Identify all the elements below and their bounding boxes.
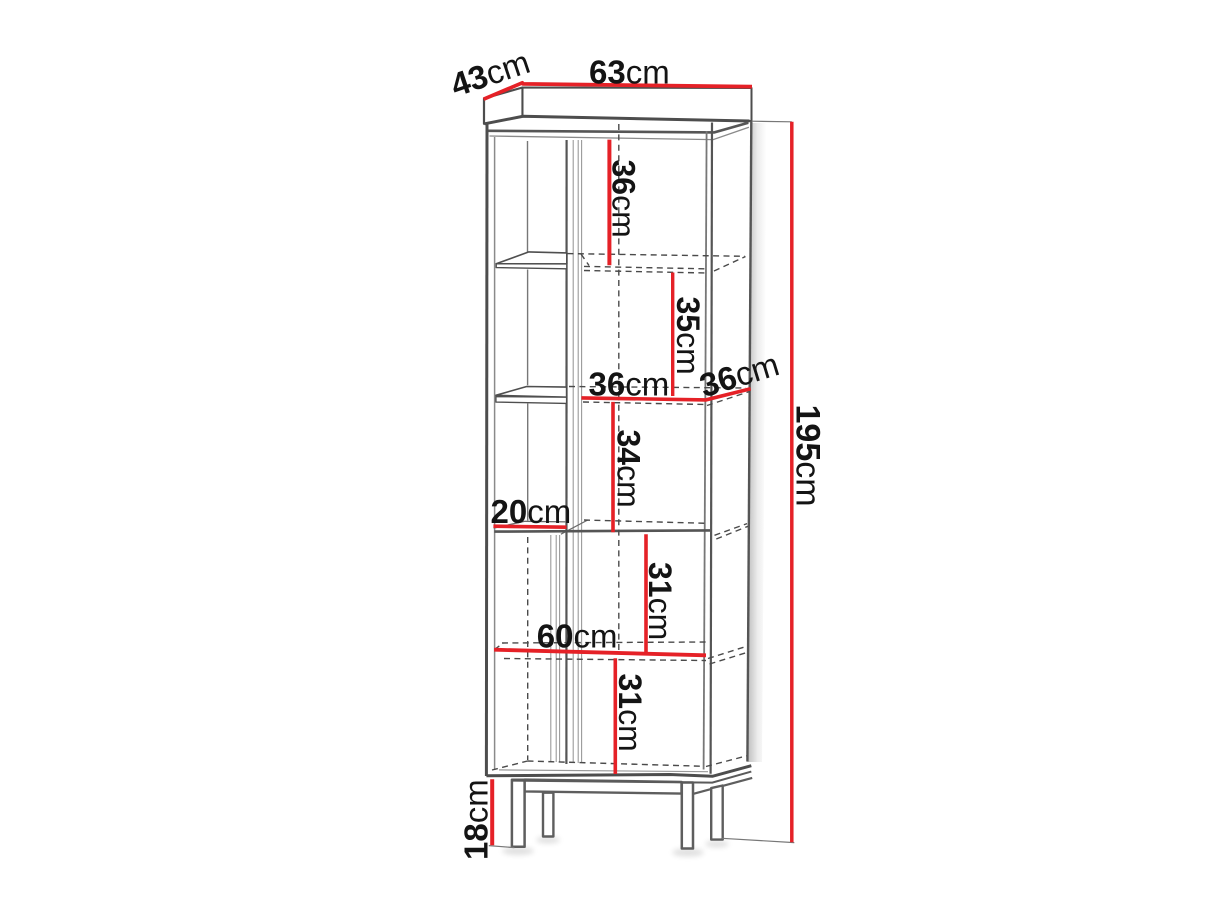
svg-text:20cm: 20cm: [491, 493, 572, 530]
svg-text:35cm: 35cm: [670, 297, 706, 375]
svg-text:18cm: 18cm: [458, 779, 495, 860]
svg-text:31cm: 31cm: [612, 674, 648, 752]
svg-text:36cm: 36cm: [589, 365, 670, 402]
svg-text:31cm: 31cm: [642, 562, 678, 640]
svg-text:60cm: 60cm: [537, 618, 618, 655]
svg-text:36cm: 36cm: [606, 160, 642, 238]
svg-text:63cm: 63cm: [589, 54, 670, 91]
svg-text:195cm: 195cm: [789, 405, 827, 507]
svg-text:34cm: 34cm: [611, 430, 647, 508]
